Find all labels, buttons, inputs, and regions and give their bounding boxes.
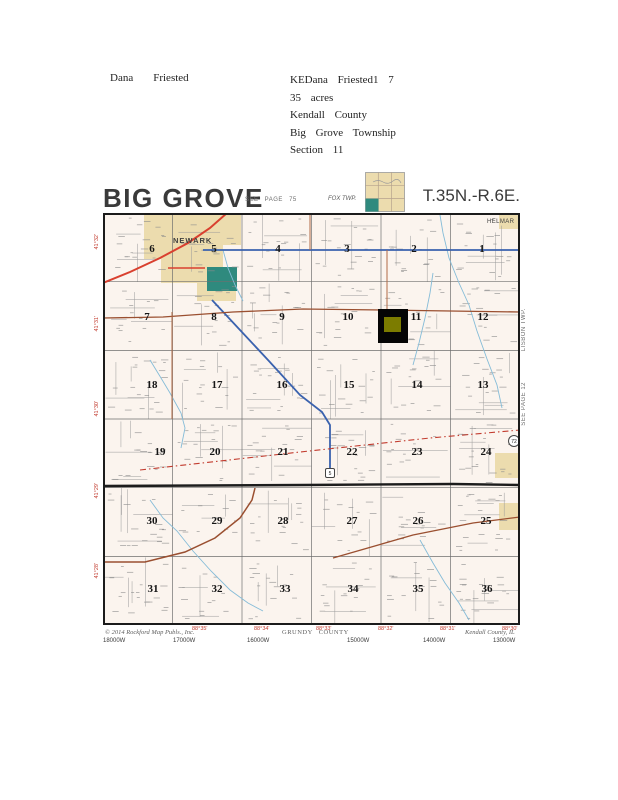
route-shield: 5 [326, 469, 335, 478]
section-number: 15 [344, 379, 356, 391]
owner-first-name: Dana [110, 72, 133, 84]
longitude-label: 88°35' [192, 626, 208, 632]
section-number: 18 [147, 379, 159, 391]
header-owner: DanaFriested [110, 72, 189, 84]
svg-text:5: 5 [329, 471, 332, 477]
section-number: 26 [413, 515, 425, 527]
township-range-label: T.35N.-R.6E. [397, 186, 520, 206]
section-number: 17 [212, 379, 224, 391]
grid-coordinate-label: 17000W [173, 638, 195, 644]
section-number: 16 [277, 379, 289, 391]
header-details: KEDana Friested1 7 35 acres Kendall Coun… [290, 72, 396, 160]
section-number: 28 [278, 515, 290, 527]
section-number: 2 [411, 243, 417, 255]
longitude-label: 88°31' [440, 626, 456, 632]
section-number: 31 [148, 583, 159, 595]
section-number: 30 [147, 515, 159, 527]
longitude-label: 88°32' [378, 626, 394, 632]
section-number: 13 [478, 379, 490, 391]
grid-coordinate-label: 16000W [247, 638, 269, 644]
section-number: 3 [344, 243, 350, 255]
section-number: 29 [212, 515, 224, 527]
svg-text:72: 72 [511, 439, 517, 445]
target-parcel-highlight [378, 309, 408, 343]
map-title: BIG GROVE [103, 183, 264, 214]
grid-coordinate-label: 18000W [103, 638, 125, 644]
adjacent-township-top-label: FOX TWP. [328, 196, 356, 202]
section-number: 36 [482, 583, 494, 595]
section-number: 11 [411, 311, 421, 323]
section-number: 33 [280, 583, 292, 595]
section-number: 20 [210, 446, 222, 458]
owner-last-name: Friested [153, 72, 188, 84]
locator-current-township-cell [366, 199, 379, 212]
adjacent-township-right-label: LISBON TWP. [521, 308, 527, 351]
grid-coordinate-label: 14000W [423, 638, 445, 644]
section-number: 35 [413, 583, 425, 595]
longitude-label: 88°34' [254, 626, 270, 632]
section-number: 22 [347, 446, 359, 458]
document-page: DanaFriested KEDana Friested1 7 35 acres… [0, 0, 618, 800]
adjacent-township-right-label: SEE PAGE 12 [521, 382, 527, 426]
section-number: 32 [212, 583, 224, 595]
section-number: 10 [343, 311, 355, 323]
longitude-label: 88°33' [316, 626, 332, 632]
section-number: 7 [144, 311, 150, 323]
section-number: 24 [481, 446, 493, 458]
latitude-label: 41°29' [94, 483, 100, 499]
latitude-label: 41°28' [94, 563, 100, 579]
section-number: 12 [478, 311, 490, 323]
plat-map: BIG GROVE SEE PAGE 75 FOX TWP. T.35N.-R.… [97, 170, 533, 680]
section-number: 23 [412, 446, 424, 458]
latitude-label: 41°32' [94, 234, 100, 250]
route-shield: 72 [509, 436, 520, 447]
detail-county: Kendall County [290, 107, 396, 125]
section-number: 19 [155, 446, 167, 458]
section-number: 6 [149, 243, 155, 255]
longitude-label: 88°30' [502, 626, 518, 632]
detail-owner-id: KEDana Friested1 7 [290, 72, 396, 90]
section-number: 27 [347, 515, 359, 527]
place-label: NEWARK [173, 236, 212, 245]
grid-coordinate-label: 15000W [347, 638, 369, 644]
detail-township: Big Grove Township [290, 125, 396, 143]
see-page-label: SEE PAGE 75 [245, 197, 297, 203]
plat-map-canvas: 725NEWARKHELMAR6543217891011121817161514… [103, 213, 520, 625]
section-number: 9 [279, 311, 285, 323]
section-number: 4 [275, 243, 281, 255]
grid-coordinate-label: 13000W [493, 638, 515, 644]
detail-acres: 35 acres [290, 90, 396, 108]
section-number: 34 [348, 583, 360, 595]
detail-section: Section 11 [290, 142, 396, 160]
section-number: 8 [211, 311, 217, 323]
latitude-label: 41°31' [94, 316, 100, 332]
section-number: 25 [481, 515, 493, 527]
latitude-label: 41°30' [94, 401, 100, 417]
section-number: 5 [211, 243, 217, 255]
place-label: HELMAR [487, 219, 515, 225]
section-number: 1 [479, 243, 485, 255]
copyright-label: © 2014 Rockford Map Publs., Inc. [105, 629, 195, 636]
section-number: 21 [278, 446, 289, 458]
section-number: 14 [412, 379, 424, 391]
